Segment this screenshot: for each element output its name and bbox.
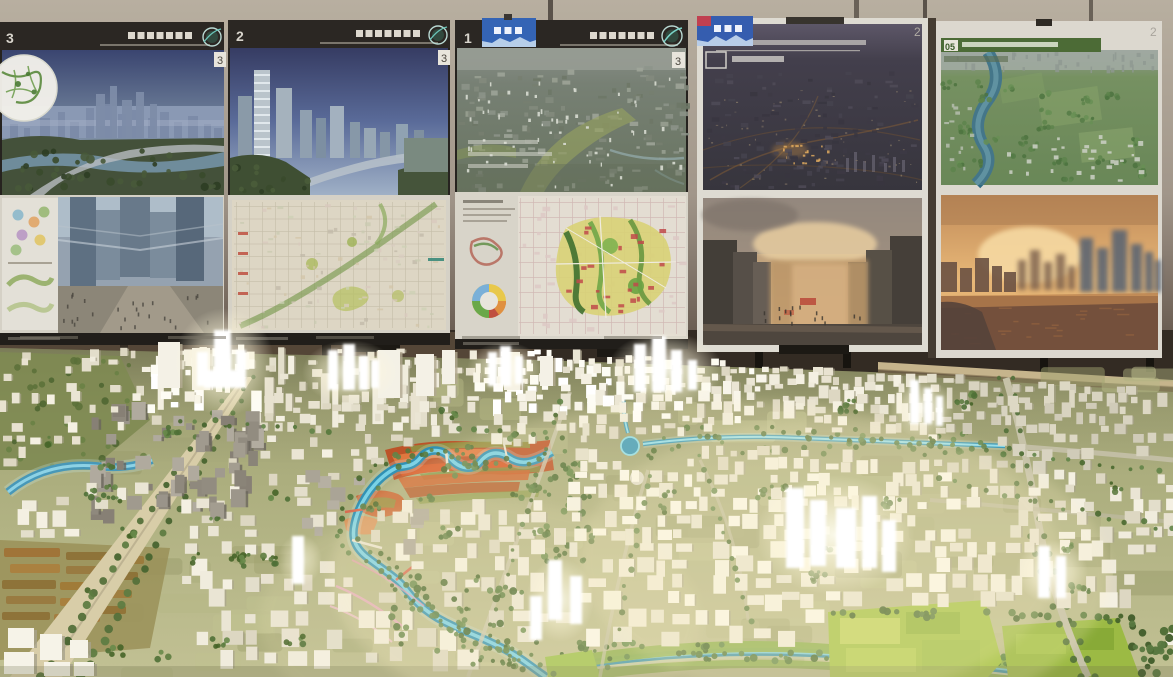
svg-text:1: 1 bbox=[464, 30, 472, 46]
svg-text:2: 2 bbox=[236, 28, 244, 44]
svg-text:2: 2 bbox=[914, 25, 921, 39]
svg-text:3: 3 bbox=[217, 55, 223, 67]
svg-text:2: 2 bbox=[1150, 25, 1157, 39]
svg-text:05: 05 bbox=[945, 42, 955, 52]
svg-text:3: 3 bbox=[6, 30, 14, 46]
svg-text:3: 3 bbox=[441, 53, 447, 65]
svg-text:3: 3 bbox=[675, 56, 681, 68]
